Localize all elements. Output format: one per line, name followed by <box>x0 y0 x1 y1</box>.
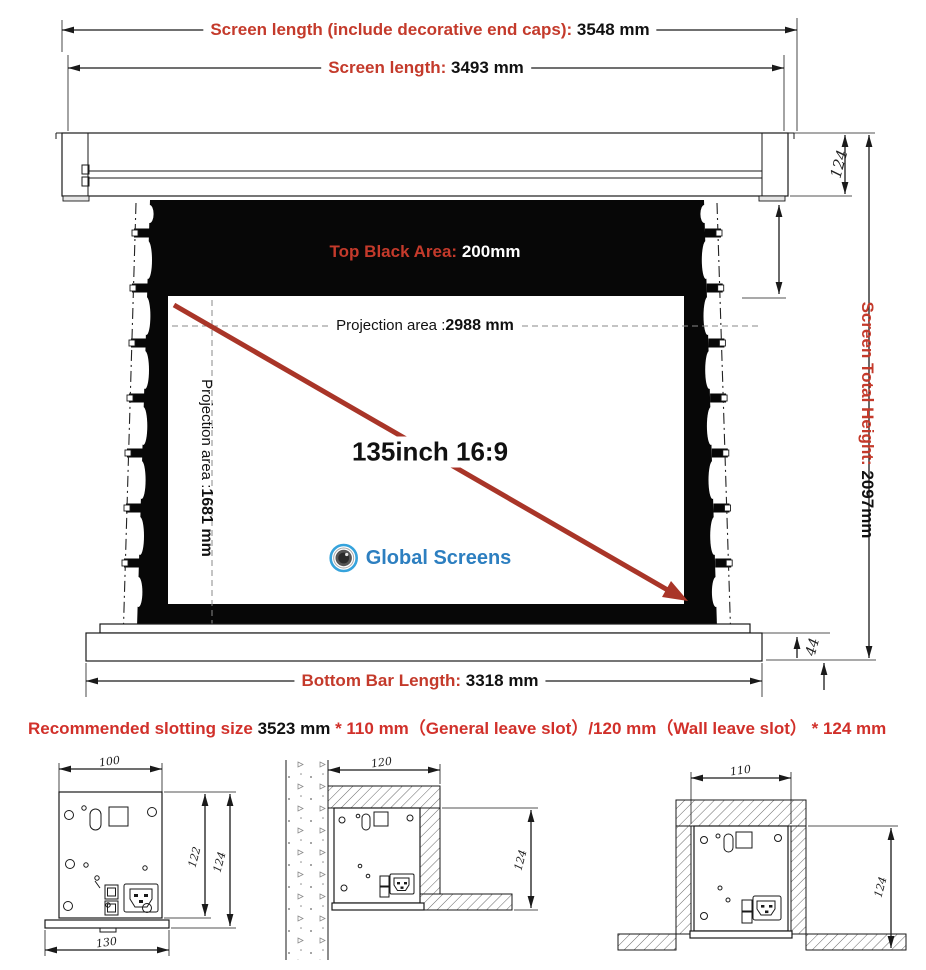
projection-width-caption: Projection area : <box>336 317 445 334</box>
svg-text:124: 124 <box>211 850 229 874</box>
screen-length-label: Screen length: 3493 mm <box>321 58 531 78</box>
projection-height-label: Projection area :1681 mm <box>197 379 215 557</box>
screen-length-caption: Screen length: <box>328 58 446 77</box>
screen-size-label: 135inch 16:9 <box>345 437 515 468</box>
top-black-area-label: Top Black Area: 200mm <box>330 242 521 262</box>
brand-name: Global Screens <box>366 547 512 570</box>
top-black-caption: Top Black Area: <box>330 242 458 261</box>
svg-text:110: 110 <box>729 763 752 779</box>
slotting-size-line: Recommended slotting size 3523 mm * 110 … <box>28 714 886 739</box>
full-length-caption: Screen length (include decorative end ca… <box>210 20 572 39</box>
main-diagram <box>0 0 926 745</box>
svg-text:120: 120 <box>370 755 393 771</box>
end-cap-body <box>45 792 169 932</box>
end-view-drawing: 100 <box>12 748 252 970</box>
screen-spec-sheet: Screen length (include decorative end ca… <box>0 0 926 970</box>
screen-length-value: 3493 mm <box>451 58 524 77</box>
left-tension-cable <box>123 203 136 643</box>
projection-width-label: Projection area :2988 mm <box>329 317 521 335</box>
wall-section <box>286 760 328 960</box>
projection-height-caption: Projection area : <box>198 379 215 488</box>
total-height-caption: Screen Total Height: <box>858 302 877 466</box>
bottom-bar-length-label: Bottom Bar Length: 3318 mm <box>294 671 545 691</box>
housing-in-slot <box>332 808 424 910</box>
screen-housing <box>56 133 794 201</box>
projection-height-value: 1681 mm <box>198 488 215 557</box>
svg-text:124: 124 <box>872 875 890 899</box>
svg-text:124: 124 <box>512 848 530 872</box>
bottom-bar-caption: Bottom Bar Length: <box>301 671 461 690</box>
dim-end-total-height: 124 <box>171 794 236 928</box>
wall-slot-drawing: 120 124 <box>262 748 562 970</box>
full-length-value: 3548 mm <box>577 20 650 39</box>
svg-text:100: 100 <box>98 754 121 770</box>
bottom-bar <box>86 624 762 661</box>
dim-ceiling-slot-height: 124 <box>808 826 898 950</box>
ceiling-slot-drawing: 110 124 <box>598 748 926 970</box>
projection-width-value: 2988 mm <box>445 317 514 334</box>
brand-logo: Global Screens <box>329 543 512 573</box>
lens-icon <box>329 543 359 573</box>
dim-end-base-width: 130 <box>45 930 169 956</box>
dim-end-top-width: 100 <box>59 754 162 792</box>
dim-wall-slot-width: 120 <box>328 755 440 784</box>
total-height-label: Screen Total Height: 2097mm <box>857 302 877 539</box>
bottom-bar-value: 3318 mm <box>466 671 539 690</box>
right-tension-cable <box>717 203 731 643</box>
full-length-label: Screen length (include decorative end ca… <box>203 20 656 40</box>
housing-in-ceiling <box>690 826 792 938</box>
svg-text:130: 130 <box>95 935 118 951</box>
dim-top-black-area <box>742 205 786 298</box>
slotting-value: 3523 mm <box>258 719 331 738</box>
slotting-caption: Recommended slotting size <box>28 719 253 738</box>
svg-text:122: 122 <box>186 845 204 869</box>
slotting-detail: * 110 mm（General leave slot）/120 mm（Wall… <box>335 719 886 738</box>
total-height-value: 2097mm <box>858 470 877 538</box>
top-black-value: 200mm <box>462 242 521 261</box>
